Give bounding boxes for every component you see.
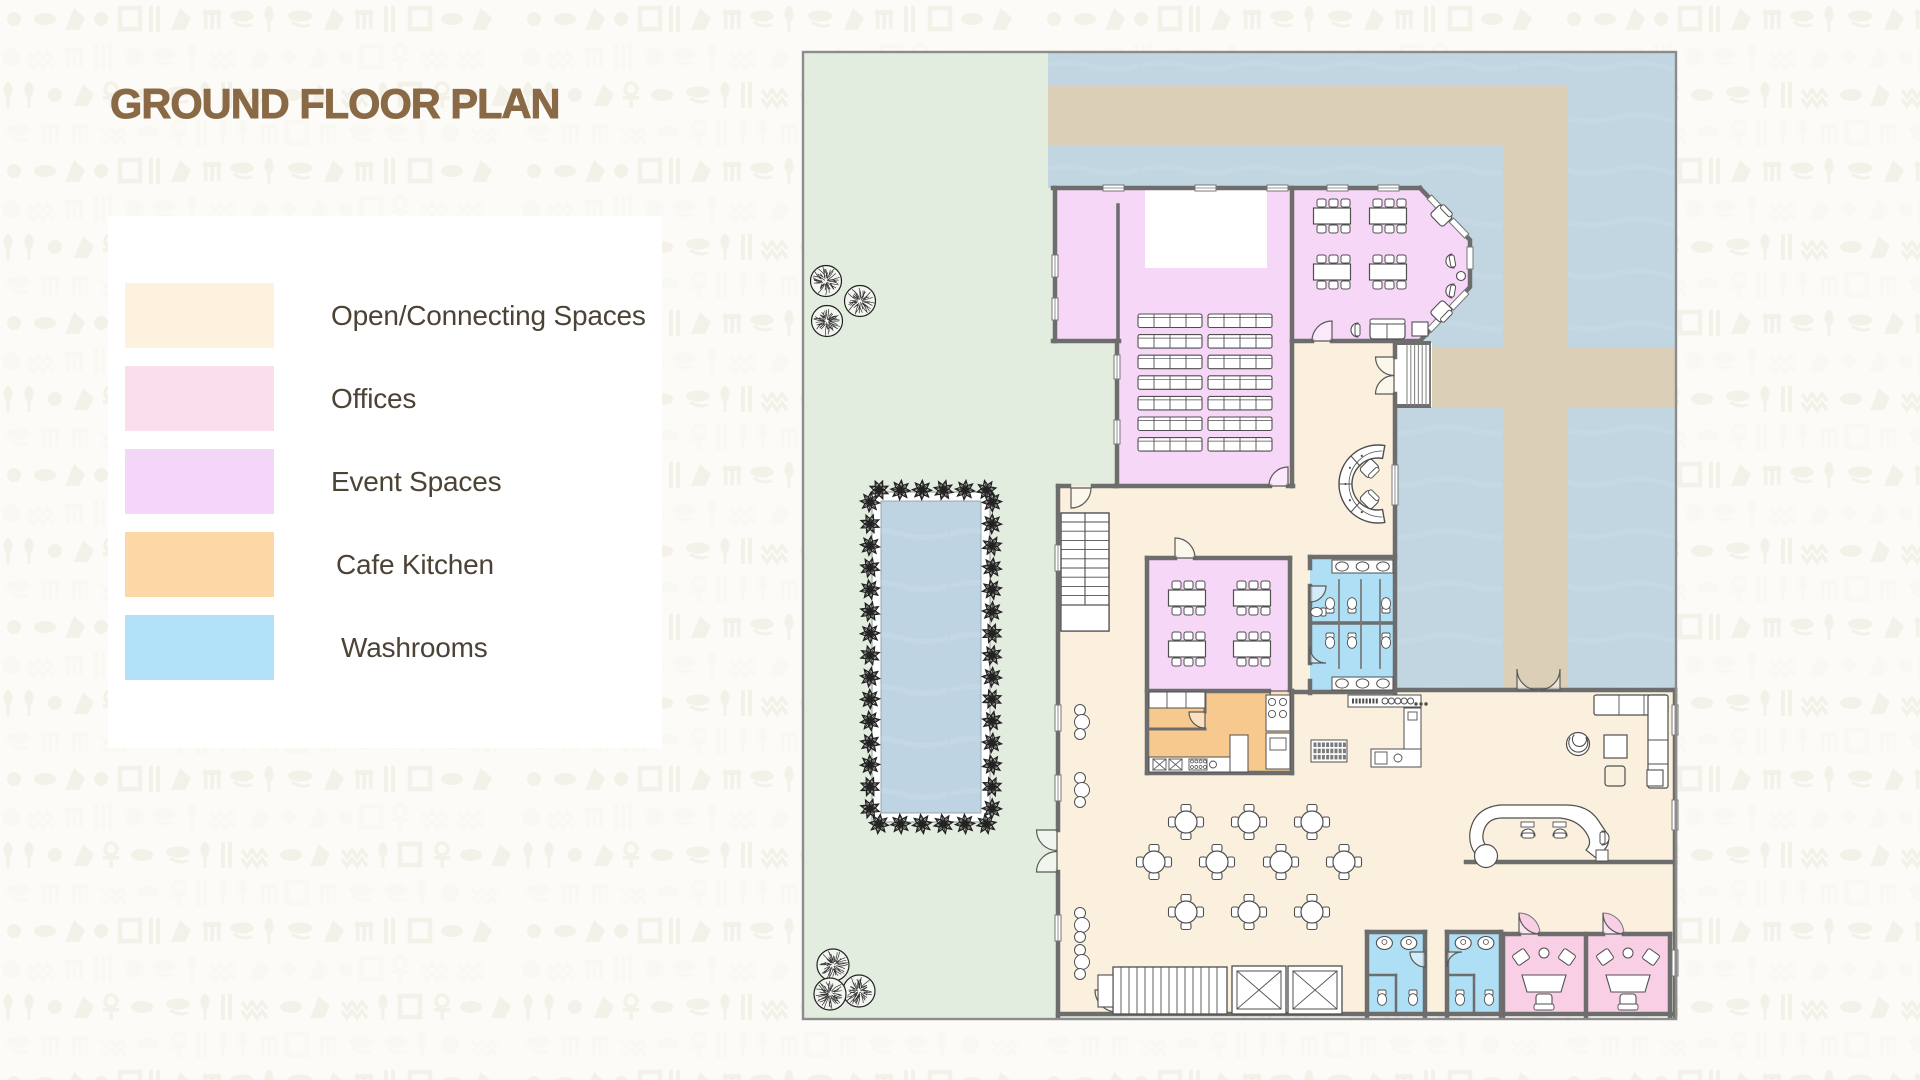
svg-text:Washrooms: Washrooms [341,632,488,663]
svg-text:Open/Connecting Spaces: Open/Connecting Spaces [331,300,646,331]
svg-text:Event Spaces: Event Spaces [331,466,501,497]
svg-text:Offices: Offices [331,383,416,414]
svg-text:Cafe Kitchen: Cafe Kitchen [336,549,494,580]
svg-text:GROUND FLOOR PLAN: GROUND FLOOR PLAN [110,80,560,127]
